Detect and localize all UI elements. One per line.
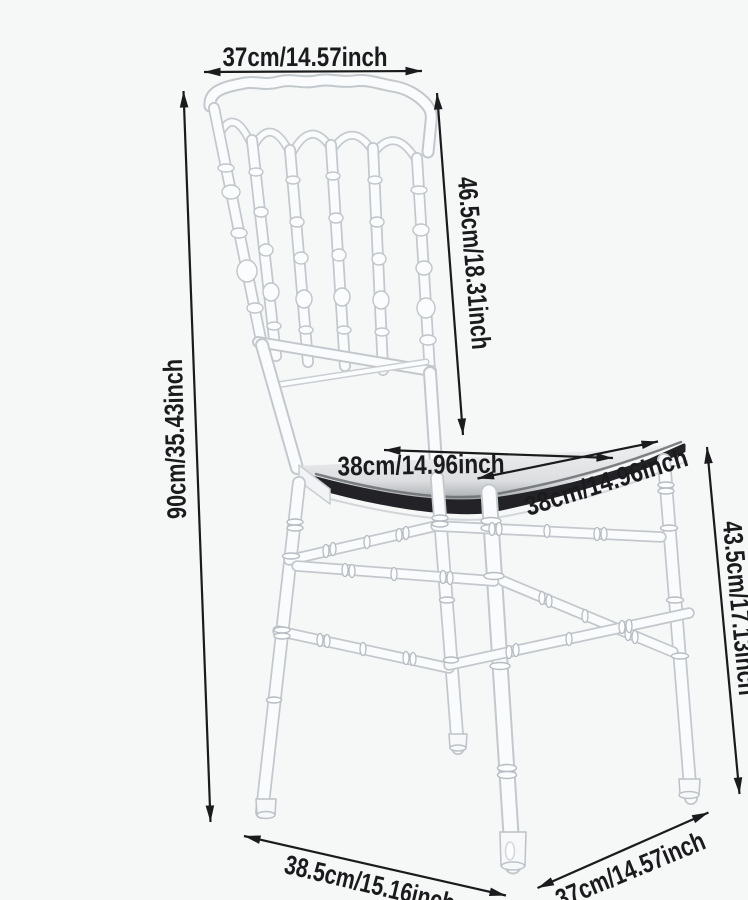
svg-text:38cm/14.96inch: 38cm/14.96inch bbox=[337, 449, 504, 482]
svg-text:37cm/14.57inch: 37cm/14.57inch bbox=[223, 42, 388, 72]
svg-text:90cm/35.43inch: 90cm/35.43inch bbox=[158, 359, 192, 520]
